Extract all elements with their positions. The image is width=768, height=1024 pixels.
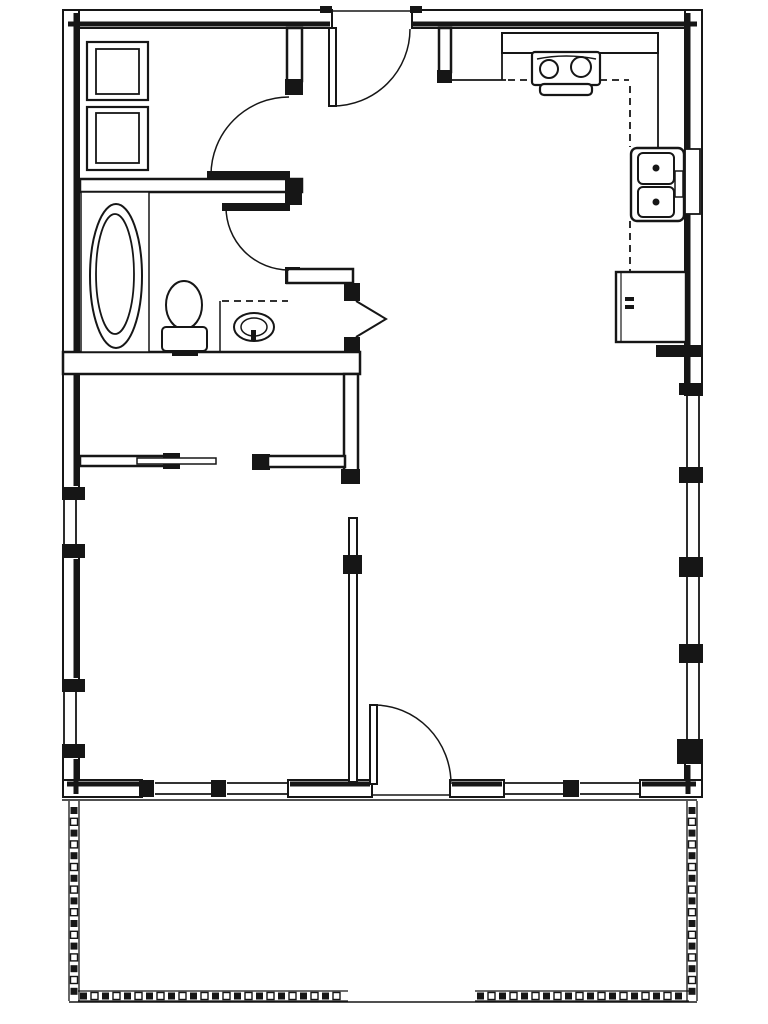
deck-railing-right-baluster bbox=[689, 977, 696, 984]
deck-railing-right-baluster bbox=[689, 818, 696, 825]
deck-railing-bottom-right-baluster bbox=[664, 993, 671, 1000]
washer-inner bbox=[96, 49, 139, 94]
deck-railing-left-baluster bbox=[71, 988, 78, 995]
utility-closet-north-wall bbox=[287, 269, 353, 283]
window-right-jamb-top bbox=[679, 383, 703, 395]
deck-railing-bottom-right-baluster bbox=[499, 993, 506, 1000]
entry-door-swing-arc bbox=[333, 29, 410, 106]
deck-railing-left-baluster bbox=[71, 954, 78, 961]
range-knob-bottom bbox=[653, 199, 660, 206]
deck-railing-bottom-right-baluster bbox=[554, 993, 561, 1000]
deck-railing-bottom-left-baluster bbox=[212, 993, 219, 1000]
deck-railing-right-baluster bbox=[689, 841, 696, 848]
utility-closet-jamb-bottom bbox=[344, 337, 360, 353]
deck-railing-left bbox=[69, 801, 79, 1001]
entry-jamb-tick-left bbox=[320, 6, 332, 13]
deck-railing-right-baluster bbox=[689, 920, 696, 927]
patio-door-swing-arc bbox=[374, 705, 451, 784]
window-right-mullion-2 bbox=[679, 557, 703, 577]
kitchen-return-wall bbox=[656, 345, 702, 357]
deck-railing-bottom-right-baluster bbox=[653, 993, 660, 1000]
deck-railing-left-baluster bbox=[71, 852, 78, 859]
laundry-east-wall bbox=[287, 28, 302, 81]
deck-railing-bottom-right-baluster bbox=[642, 993, 649, 1000]
dryer-inner bbox=[96, 113, 139, 163]
deck-railing-right-baluster bbox=[689, 852, 696, 859]
refrigerator-label-mark-2 bbox=[625, 305, 634, 309]
deck-railing-bottom-right-baluster bbox=[477, 993, 484, 1000]
toilet-base bbox=[172, 350, 198, 356]
deck-railing-bottom-left-baluster bbox=[201, 993, 208, 1000]
deck-railing-bottom-right-baluster bbox=[598, 993, 605, 1000]
deck-railing-left-baluster bbox=[71, 897, 78, 904]
toilet-bowl bbox=[166, 281, 202, 329]
bedroom-north-wall-right bbox=[268, 456, 345, 467]
kitchen-entry-stub-foot bbox=[437, 70, 452, 83]
bedroom-door-jamb-block bbox=[343, 555, 362, 574]
deck-railing-left-baluster bbox=[71, 830, 78, 837]
deck-railing-bottom-right bbox=[475, 991, 689, 1001]
deck-railing-right-baluster bbox=[689, 988, 696, 995]
floor-plan bbox=[0, 0, 768, 1024]
deck-railing-bottom-right-baluster bbox=[521, 993, 528, 1000]
pocket-door-panel bbox=[137, 458, 216, 464]
window-left-2-jamb-bottom bbox=[62, 744, 85, 758]
deck-railing-right-baluster bbox=[689, 931, 696, 938]
deck-railing-bottom-left-baluster bbox=[333, 993, 340, 1000]
laundry-door-swing-arc bbox=[211, 97, 289, 175]
deck-railing-right-baluster bbox=[689, 875, 696, 882]
deck-railing-bottom-right-baluster bbox=[609, 993, 616, 1000]
deck-railing-left-baluster bbox=[71, 909, 78, 916]
deck-railing-right-baluster bbox=[689, 864, 696, 871]
deck-railing-bottom-left-baluster bbox=[278, 993, 285, 1000]
deck-railing-left-baluster bbox=[71, 920, 78, 927]
bathroom-door-swing-arc bbox=[226, 207, 289, 270]
wall-right-corner-block bbox=[677, 739, 703, 764]
laundry-bath-divider-wall bbox=[80, 179, 302, 192]
deck-railing-right-baluster bbox=[689, 943, 696, 950]
deck-railing-left-baluster bbox=[71, 841, 78, 848]
deck-railing-left-baluster bbox=[71, 886, 78, 893]
deck-railing-left-baluster bbox=[71, 864, 78, 871]
kitchen-entry-stub-wall bbox=[439, 28, 451, 72]
deck-railing-bottom-right-baluster bbox=[488, 993, 495, 1000]
refrigerator-label-mark-1 bbox=[625, 297, 634, 301]
deck-railing-left-baluster bbox=[71, 875, 78, 882]
deck-railing-bottom-right-baluster bbox=[510, 993, 517, 1000]
patio-door-leaf bbox=[370, 705, 377, 784]
kitchen-sink-counter bbox=[532, 52, 600, 85]
deck-railing-left-baluster bbox=[71, 965, 78, 972]
deck-railing-right-baluster bbox=[689, 886, 696, 893]
window-left-1-jamb-bottom bbox=[62, 544, 85, 558]
deck-railing-bottom-right-baluster bbox=[565, 993, 572, 1000]
toilet-tank bbox=[162, 327, 207, 351]
range-knob-top bbox=[653, 165, 660, 172]
deck-railing-bottom-left-baluster bbox=[256, 993, 263, 1000]
window-bottom-jamb-1 bbox=[139, 780, 154, 797]
window-bottom-mullion bbox=[211, 780, 226, 797]
deck-railing-right-baluster bbox=[689, 909, 696, 916]
entry-jamb-tick-right bbox=[410, 6, 422, 13]
deck-railing-bottom-left-baluster bbox=[124, 993, 131, 1000]
deck-railing-left-baluster bbox=[71, 807, 78, 814]
deck-railing-bottom-left-baluster bbox=[179, 993, 186, 1000]
deck-railing-right-baluster bbox=[689, 965, 696, 972]
hall-north-wall bbox=[63, 352, 360, 374]
hall-east-wall-foot bbox=[341, 469, 360, 484]
bathroom-door-leaf bbox=[222, 203, 290, 211]
deck-railing-right-baluster bbox=[689, 954, 696, 961]
deck-railing-right-baluster bbox=[689, 807, 696, 814]
deck-railing-bottom-left-baluster bbox=[190, 993, 197, 1000]
range-wall-niche bbox=[685, 149, 700, 214]
deck-railing-bottom-right-baluster bbox=[631, 993, 638, 1000]
deck-railing-bottom-left-baluster bbox=[91, 993, 98, 1000]
window-right-mullion-3 bbox=[679, 644, 703, 663]
deck-railing-bottom-right-baluster bbox=[543, 993, 550, 1000]
deck-railing-left-baluster bbox=[71, 818, 78, 825]
deck-railing-right-baluster bbox=[689, 897, 696, 904]
utility-closet-jamb-top bbox=[344, 283, 360, 301]
deck-railing-bottom-left-baluster bbox=[267, 993, 274, 1000]
kitchen-sink-front-bump bbox=[540, 84, 592, 95]
entry-door-leaf bbox=[329, 28, 336, 106]
deck-railing-bottom-left bbox=[78, 991, 348, 1001]
laundry-door-leaf bbox=[207, 171, 290, 179]
deck-railing-bottom-left-baluster bbox=[102, 993, 109, 1000]
deck-railing-bottom-left-baluster bbox=[168, 993, 175, 1000]
deck-railing-bottom-left-baluster bbox=[80, 993, 87, 1000]
deck-railing-right-baluster bbox=[689, 830, 696, 837]
deck-railing-bottom-right-baluster bbox=[620, 993, 627, 1000]
deck-railing-left-baluster bbox=[71, 931, 78, 938]
kitchen-upper-cabinet bbox=[502, 33, 658, 53]
range-side-tab bbox=[675, 171, 683, 197]
utility-closet-bifold-door bbox=[356, 301, 386, 337]
bathroom-door-jamb-top bbox=[285, 179, 302, 205]
deck-railing-bottom-left-baluster bbox=[234, 993, 241, 1000]
deck-railing-bottom-left-baluster bbox=[157, 993, 164, 1000]
window-right-mullion-1 bbox=[679, 467, 703, 483]
bathtub-surround bbox=[81, 192, 149, 352]
deck-railing-left-baluster bbox=[71, 977, 78, 984]
deck-railing-bottom-left-baluster bbox=[311, 993, 318, 1000]
floor-plan-canvas bbox=[0, 0, 768, 1024]
window-bottom-jamb-2 bbox=[563, 780, 579, 797]
deck-railing-bottom-right-baluster bbox=[675, 993, 682, 1000]
deck-railing-bottom-left-baluster bbox=[300, 993, 307, 1000]
window-left-1-jamb-top bbox=[62, 487, 85, 500]
deck-railing-bottom-left-baluster bbox=[289, 993, 296, 1000]
window-left-2-jamb-top bbox=[62, 679, 85, 692]
deck-railing-bottom-left-baluster bbox=[146, 993, 153, 1000]
deck-railing-bottom-left-baluster bbox=[135, 993, 142, 1000]
laundry-east-wall-foot bbox=[285, 79, 303, 95]
deck-railing-bottom-right-baluster bbox=[587, 993, 594, 1000]
deck-railing-bottom-right-baluster bbox=[576, 993, 583, 1000]
deck-railing-bottom-right-baluster bbox=[532, 993, 539, 1000]
deck-railing-left-baluster bbox=[71, 943, 78, 950]
deck-railing-bottom-left-baluster bbox=[113, 993, 120, 1000]
deck-railing-bottom-left-baluster bbox=[245, 993, 252, 1000]
deck-railing-bottom-left-baluster bbox=[223, 993, 230, 1000]
deck-railing-bottom-left-baluster bbox=[322, 993, 329, 1000]
vanity-faucet bbox=[251, 330, 256, 341]
deck-railing-right bbox=[687, 801, 697, 1001]
